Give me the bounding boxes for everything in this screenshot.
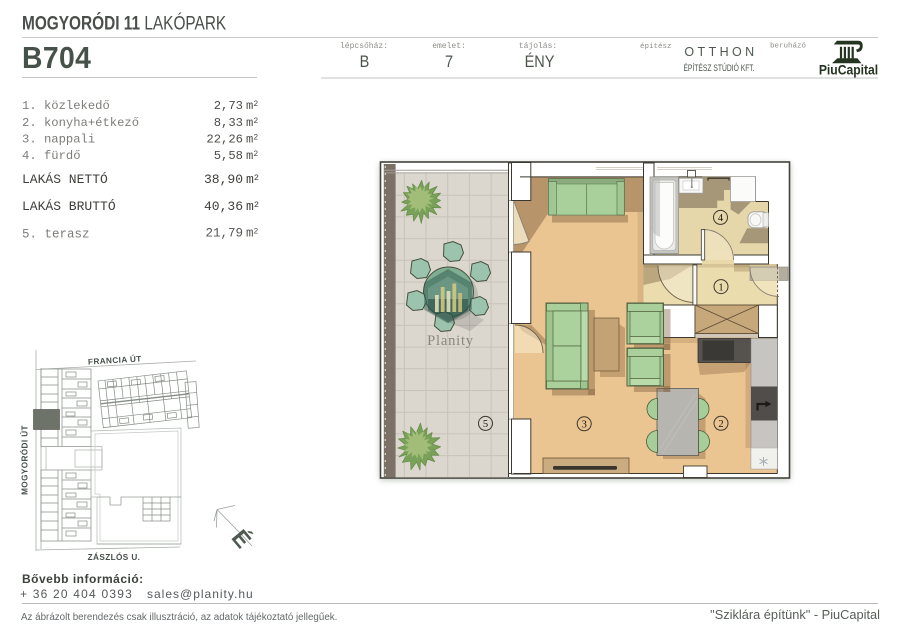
svg-text:É: É (227, 524, 258, 553)
svg-text:Az ábrázolt berendezés csak il: Az ábrázolt berendezés csak illusztráció… (21, 612, 337, 623)
svg-text:3. nappali: 3. nappali (22, 133, 95, 147)
svg-text:Bővebb információ:: Bővebb információ: (22, 572, 144, 586)
svg-text:sales@planity.hu: sales@planity.hu (147, 587, 254, 601)
svg-text:PiuCapital: PiuCapital (819, 62, 878, 78)
svg-text:1. közlekedő: 1. közlekedő (22, 99, 110, 113)
svg-text:7: 7 (445, 53, 453, 71)
svg-text:Planity: Planity (427, 333, 474, 349)
svg-text:1: 1 (718, 282, 723, 293)
svg-text:m2: m2 (246, 99, 258, 113)
svg-text:+ 36 20 404 0393: + 36 20 404 0393 (20, 587, 133, 601)
svg-text:ÉPÍTÉSZ STÚDIÓ KFT.: ÉPÍTÉSZ STÚDIÓ KFT. (683, 63, 754, 73)
svg-text:"Sziklára építünk" - PiuCapita: "Sziklára építünk" - PiuCapital (710, 607, 880, 622)
svg-text:LAKÁS NETTÓ: LAKÁS NETTÓ (22, 172, 108, 187)
svg-text:építész: építész (640, 43, 672, 51)
svg-text:2. konyha+étkező: 2. konyha+étkező (22, 116, 139, 130)
svg-text:4: 4 (718, 213, 724, 224)
svg-text:ZÁSZLÓS U.: ZÁSZLÓS U. (88, 551, 141, 562)
svg-text:MOGYORÓDI 11 LAKÓPARK: MOGYORÓDI 11 LAKÓPARK (22, 11, 226, 34)
svg-text:m2: m2 (246, 199, 259, 214)
svg-text:beruházó: beruházó (770, 43, 807, 51)
svg-text:8,33: 8,33 (214, 116, 243, 130)
svg-text:MOGYORÓDI ÚT: MOGYORÓDI ÚT (19, 425, 30, 495)
svg-text:4. fürdő: 4. fürdő (22, 149, 81, 163)
svg-text:emelet:: emelet: (432, 42, 466, 51)
svg-text:B: B (360, 53, 370, 71)
svg-text:3: 3 (582, 420, 587, 431)
svg-text:m2: m2 (246, 116, 258, 130)
svg-text:m2: m2 (246, 133, 258, 147)
svg-text:LAKÁS BRUTTÓ: LAKÁS BRUTTÓ (22, 199, 116, 214)
svg-text:22,26: 22,26 (206, 133, 243, 147)
svg-text:m2: m2 (246, 172, 259, 187)
svg-text:38,90: 38,90 (204, 172, 243, 187)
svg-text:2,73: 2,73 (214, 99, 243, 113)
svg-text:ÉNY: ÉNY (525, 53, 555, 71)
svg-text:5. terasz: 5. terasz (22, 228, 90, 242)
svg-text:lépcsőház:: lépcsőház: (340, 42, 388, 51)
svg-text:21,79: 21,79 (205, 227, 243, 241)
svg-text:tájolás:: tájolás: (519, 42, 557, 51)
svg-text:2: 2 (718, 419, 723, 430)
svg-text:m2: m2 (246, 149, 258, 163)
svg-text:5,58: 5,58 (214, 149, 243, 163)
svg-text:5: 5 (483, 419, 488, 430)
svg-text:m2: m2 (246, 227, 259, 241)
svg-text:OTTHON: OTTHON (684, 45, 757, 59)
svg-text:40,36: 40,36 (204, 199, 243, 214)
svg-text:B704: B704 (22, 41, 91, 75)
